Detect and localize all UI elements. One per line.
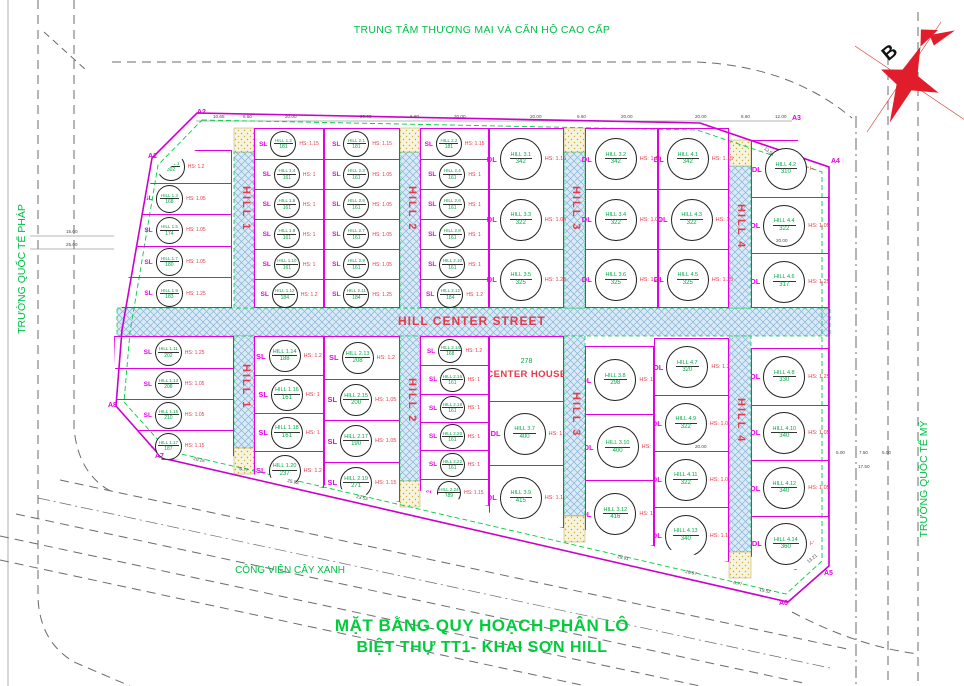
lot-hs-ratio: HS: 1.2 bbox=[304, 353, 322, 359]
lot-type-label: DL bbox=[487, 275, 497, 284]
lot-circle: HILL 2.16161 bbox=[440, 368, 464, 392]
lot-type-label: DL bbox=[487, 215, 497, 224]
dimension-label: 6.60 bbox=[741, 114, 750, 119]
lot-type-label: SL bbox=[258, 390, 268, 399]
lot-hs-ratio: HS: 1.15 bbox=[375, 480, 396, 486]
lot-circle: HILL 3.3322 bbox=[500, 199, 542, 241]
lot-name: HILL 1.18 bbox=[274, 425, 300, 432]
lot-type-label: SL bbox=[259, 141, 267, 148]
lot-name: HILL 3.10 bbox=[605, 440, 631, 447]
lot-circle: HILL 1.4161 bbox=[274, 162, 300, 188]
lot-hill-2-7: SLHILL 2.7161HS: 1.05 bbox=[325, 219, 399, 249]
lot-hs-ratio: HS: 1.05 bbox=[808, 430, 829, 436]
lot-type-label: DL bbox=[654, 155, 664, 164]
lot-hill-1-18: SLHILL 1.18161HS: 1 bbox=[255, 413, 323, 451]
lot-circle: HILL 4.7320 bbox=[666, 346, 708, 388]
lot-hs-ratio: HS: 1 bbox=[468, 172, 481, 178]
lot-circle: HILL 3.6325 bbox=[595, 259, 637, 301]
lot-area: 400 bbox=[613, 448, 623, 455]
hill-center-street-label: HILL CENTER STREET bbox=[398, 314, 546, 328]
lot-type-label: SL bbox=[263, 171, 271, 178]
lot-area: 168 bbox=[446, 351, 454, 357]
street-name-top-1: HILL 1 bbox=[240, 186, 252, 231]
lot-hill-4-7: DLHILL 4.7320HS: 1.2 bbox=[655, 339, 728, 395]
lot-type-label: DL bbox=[750, 484, 760, 493]
block-b34a: DLHILL 3.8298HS: 1.2DLHILL 3.10400HS: 1D… bbox=[585, 346, 654, 546]
lot-area: 320 bbox=[682, 367, 692, 374]
lot-name: HILL 4.6 bbox=[773, 274, 796, 281]
lot-name: HILL 3.6 bbox=[605, 272, 628, 279]
lot-area: 208 bbox=[164, 384, 172, 390]
lot-name: HILL 4.13 bbox=[673, 528, 699, 535]
lot-hs-ratio: HS: 1.05 bbox=[186, 227, 205, 233]
lot-area: 322 bbox=[779, 226, 789, 233]
lot-area: 237 bbox=[280, 471, 290, 478]
lot-hs-ratio: HS: 1.15 bbox=[464, 490, 483, 496]
dimension-label: 20.00 bbox=[530, 114, 542, 119]
boundary-marker-a3: A3 bbox=[792, 115, 801, 122]
park-label: CÔNG VIÊN CÂY XANH bbox=[200, 565, 380, 576]
lot-area: 325 bbox=[516, 280, 526, 287]
lot-type-label: DL bbox=[750, 277, 760, 286]
lot-area: 322 bbox=[681, 424, 691, 431]
lot-area: 161 bbox=[352, 175, 360, 181]
lot-hill-2-22: SLHILL 2.22161HS: 1 bbox=[421, 450, 488, 478]
lot-area: 202 bbox=[164, 353, 172, 359]
lot-hill-2-3: SLHILL 2.3161HS: 1.05 bbox=[325, 159, 399, 189]
lot-type-label: SL bbox=[427, 348, 435, 355]
block-b12a: SLHILL 1.14188HS: 1.2SLHILL 1.16161HS: 1… bbox=[254, 336, 324, 488]
lot-type-label: SL bbox=[328, 395, 338, 404]
lot-circle: HILL 1.5174 bbox=[156, 217, 184, 245]
lot-type-label: SL bbox=[428, 171, 436, 178]
lot-type-label: SL bbox=[263, 261, 271, 268]
lot-hill-1-14: SLHILL 1.14188HS: 1.2 bbox=[255, 337, 323, 375]
lot-hill-1-10: SLHILL 1.10161HS: 1 bbox=[255, 249, 323, 279]
block-t12b: SLHILL 2.1181HS: 1.15SLHILL 2.3161HS: 1.… bbox=[324, 128, 400, 308]
street-name-bottom-4: HILL 4 bbox=[735, 398, 747, 443]
lot-hs-ratio: HS: 1.2 bbox=[301, 292, 318, 298]
lot-hs-ratio: HS: 1.15 bbox=[545, 156, 566, 162]
lot-name: HILL 1.16 bbox=[274, 387, 300, 394]
lot-type-label: DL bbox=[582, 215, 592, 224]
lot-hs-ratio: HS: 1.05 bbox=[710, 421, 731, 427]
lot-hill-1-4: SLHILL 1.4161HS: 1 bbox=[255, 159, 323, 189]
lot-area: 342 bbox=[683, 159, 693, 166]
lot-area: 161 bbox=[448, 408, 456, 414]
lot-type-label: SL bbox=[144, 349, 152, 356]
lot-hill-4-8: DLHILL 4.8330HS: 1.25 bbox=[752, 349, 828, 405]
lot-hs-ratio: HS: 1.25 bbox=[186, 291, 205, 297]
lot-hs-ratio: HS: 1.25 bbox=[185, 350, 204, 356]
lot-type-label: SL bbox=[256, 466, 266, 475]
lot-area: 161 bbox=[352, 205, 360, 211]
lot-circle: HILL 1.8161 bbox=[274, 222, 300, 248]
east-area-label: TRƯỜNG QUỐC TẾ MỸ bbox=[918, 394, 930, 564]
lot-area: 188 bbox=[280, 356, 290, 363]
lot-area: 360 bbox=[781, 544, 791, 551]
street-name-bottom-1: HILL 1 bbox=[240, 364, 252, 409]
lot-name: HILL 2.13 bbox=[345, 351, 371, 358]
lot-hill-4-11: DLHILL 4.11322HS: 1.05 bbox=[655, 451, 728, 507]
lot-hill-1-12: SLHILL 1.12184HS: 1.2 bbox=[255, 279, 323, 309]
lot-hill-1-15: SLHILL 1.15210HS: 1.05 bbox=[115, 399, 233, 430]
lot-area: 161 bbox=[283, 235, 291, 241]
lot-circle: HILL 4.12340 bbox=[763, 467, 805, 509]
lot-name: HILL 3.9 bbox=[510, 490, 533, 497]
lot-area: 187 bbox=[164, 446, 172, 452]
lot-hs-ratio: HS: 1.05 bbox=[808, 223, 829, 229]
lot-area: 168 bbox=[165, 199, 173, 205]
lot-name: HILL 4.11 bbox=[673, 472, 698, 479]
lot-hs-ratio: HS: 1 bbox=[306, 430, 320, 436]
lot-name: HILL 4.14 bbox=[773, 537, 799, 544]
lot-circle: HILL 2.20161 bbox=[440, 424, 464, 448]
plan-title-line2: BIỆT THỰ TT1- KHAI SƠN HILL bbox=[0, 639, 964, 657]
lot-hs-ratio: HS: 1 bbox=[642, 444, 656, 450]
center-house-area: 278 bbox=[521, 358, 533, 366]
lot-hs-ratio: HS: 1.25 bbox=[712, 277, 733, 283]
lot-type-label: DL bbox=[582, 275, 592, 284]
dimension-label: 20.00 bbox=[285, 114, 297, 119]
lot-name: HILL 4.10 bbox=[771, 426, 797, 433]
lot-hill-2-6: SLHILL 2.6161HS: 1 bbox=[421, 189, 488, 219]
lot-circle: HILL 2.12184 bbox=[437, 282, 463, 308]
lot-area: 400 bbox=[520, 434, 530, 441]
lot-area: 161 bbox=[352, 265, 360, 271]
lot-hs-ratio: HS: 1.05 bbox=[185, 412, 204, 418]
block-t34a: DLHILL 3.2342HS: 1.15DLHILL 3.4322HS: 1.… bbox=[585, 128, 658, 308]
lot-type-label: DL bbox=[752, 165, 762, 174]
lot-hs-ratio: HS: 1 bbox=[468, 377, 481, 383]
lot-hs-ratio: HS: 1.15 bbox=[185, 443, 204, 449]
lot-hs-ratio: HS: 1 bbox=[716, 217, 730, 223]
lot-type-label: DL bbox=[487, 155, 497, 164]
lot-area: 184 bbox=[446, 295, 454, 301]
lot-hs-ratio: HS: 1.2 bbox=[188, 164, 205, 170]
block-b23a: SLHILL 2.14168HS: 1.2SLHILL 2.16161HS: 1… bbox=[420, 336, 489, 506]
lot-area: 184 bbox=[352, 295, 360, 301]
lot-hill-4-9: DLHILL 4.9322HS: 1.05 bbox=[655, 395, 728, 451]
lot-type-label: SL bbox=[261, 291, 269, 298]
lot-hs-ratio: HS: 1 bbox=[303, 262, 316, 268]
lot-hill-2-14: SLHILL 2.14168HS: 1.2 bbox=[421, 337, 488, 365]
lot-circle: HILL 4.11322 bbox=[665, 459, 707, 501]
lot-area: 271 bbox=[351, 483, 361, 490]
lot-hill-3-5: DLHILL 3.5325HS: 1.25 bbox=[490, 249, 563, 309]
lot-hs-ratio: HS: 1.05 bbox=[375, 397, 396, 403]
lot-circle: HILL 1.11202 bbox=[155, 339, 182, 366]
lot-area: 161 bbox=[448, 380, 456, 386]
lot-hs-ratio: HS: 1.05 bbox=[808, 485, 829, 491]
lot-area: 181 bbox=[445, 144, 453, 150]
lot-hs-ratio: HS: 1.15 bbox=[465, 141, 484, 147]
lot-type-label: SL bbox=[428, 201, 436, 208]
lot-area: 416 bbox=[610, 514, 620, 521]
lot-hill-1-9: SLHILL 1.9183HS: 1.25 bbox=[119, 277, 231, 309]
lot-hs-ratio: HS: 1 bbox=[303, 202, 316, 208]
lot-circle: HILL 4.8330 bbox=[763, 356, 805, 398]
lot-area: 340 bbox=[681, 536, 691, 543]
west-area-label: TRƯỜNG QUỐC TẾ PHÁP bbox=[16, 184, 28, 354]
lot-hill-2-9: SLHILL 2.9161HS: 1.05 bbox=[325, 249, 399, 279]
lot-hs-ratio: HS: 1 bbox=[306, 392, 320, 398]
lot-name: HILL 4.3 bbox=[680, 212, 703, 219]
lot-hill-1-13: SLHILL 1.13208HS: 1.05 bbox=[115, 368, 233, 399]
lot-hs-ratio: HS: 1 bbox=[468, 462, 481, 468]
lot-hs-ratio: HS: 1.05 bbox=[375, 438, 396, 444]
lot-circle: HILL 3.1342 bbox=[500, 138, 542, 180]
lot-circle: HILL 2.3161 bbox=[343, 162, 369, 188]
lot-circle: HILL 2.1181 bbox=[343, 131, 369, 157]
dimension-label: 6.60 bbox=[410, 114, 419, 119]
lot-hill-4-10: DLHILL 4.10340HS: 1.05 bbox=[752, 405, 828, 461]
lot-hs-ratio: HS: 1 bbox=[468, 405, 481, 411]
lot-circle: HILL 1.3168 bbox=[156, 185, 184, 213]
lot-area: 298 bbox=[610, 380, 620, 387]
boundary-marker-a7: A7 bbox=[155, 453, 164, 460]
lot-area: 184 bbox=[281, 295, 289, 301]
lot-circle: HILL 1.16161 bbox=[271, 379, 303, 411]
site-plan-canvas: B DLHILL 1.1302HS: 1.2SLHILL 1.3168HS: 1… bbox=[0, 0, 964, 686]
lot-circle: HILL 1.12184 bbox=[272, 282, 298, 308]
lot-type-label: SL bbox=[144, 290, 152, 297]
lot-hill-3-2: DLHILL 3.2342HS: 1.15 bbox=[586, 129, 657, 189]
dimension-label: 15.00 bbox=[66, 229, 78, 234]
lot-circle: HILL 3.10400 bbox=[597, 426, 639, 468]
lot-area: 210 bbox=[164, 415, 172, 421]
lot-area: 161 bbox=[448, 175, 456, 181]
lot-hs-ratio: HS: 1.15 bbox=[299, 141, 318, 147]
block-t34b: DLHILL 4.1342HS: 1.15DLHILL 4.3322HS: 1D… bbox=[658, 128, 729, 308]
lot-circle: HILL 2.10161 bbox=[439, 252, 465, 278]
lot-hill-2-5: SLHILL 2.5161HS: 1.05 bbox=[325, 189, 399, 219]
dimension-label: 20.00 bbox=[621, 114, 633, 119]
lot-type-label: SL bbox=[329, 353, 339, 362]
lot-circle: HILL 3.4322 bbox=[595, 199, 637, 241]
lot-hs-ratio: HS: 1 bbox=[468, 232, 481, 238]
lot-hill-4-3: DLHILL 4.3322HS: 1 bbox=[659, 189, 728, 249]
lot-type-label: DL bbox=[750, 372, 760, 381]
dimension-label: 25.00 bbox=[66, 242, 78, 247]
lot-circle: HILL 2.11184 bbox=[343, 282, 369, 308]
lot-circle: HILL 3.7400 bbox=[504, 413, 546, 455]
lot-type-label: SL bbox=[328, 437, 338, 446]
lot-area: 330 bbox=[779, 377, 789, 384]
lot-name: HILL 4.2 bbox=[775, 162, 798, 169]
lot-name: HILL 2.17 bbox=[343, 434, 369, 441]
block-t12a: SLHILL 1.2181HS: 1.15SLHILL 1.4161HS: 1S… bbox=[254, 128, 324, 308]
lot-name: HILL 3.2 bbox=[605, 152, 628, 159]
lot-hill-2-13: SLHILL 2.13208HS: 1.2 bbox=[325, 337, 399, 379]
lot-type-label: SL bbox=[428, 261, 436, 268]
lot-area: 317 bbox=[779, 282, 789, 289]
lot-area: 161 bbox=[283, 175, 291, 181]
lot-center-house: 278CENTER HOUSE bbox=[490, 337, 563, 401]
plan-title: MẶT BẰNG QUY HOẠCH PHÂN LÔ BIỆT THỰ TT1-… bbox=[0, 616, 964, 657]
lot-name: HILL 4.9 bbox=[675, 416, 698, 423]
lot-area: 161 bbox=[448, 465, 456, 471]
lot-type-label: DL bbox=[491, 429, 501, 438]
lot-type-label: SL bbox=[256, 352, 266, 361]
dimension-label: 17.50 bbox=[858, 464, 870, 469]
lot-name: HILL 3.7 bbox=[513, 426, 536, 433]
lot-hill-2-20: SLHILL 2.20161HS: 1 bbox=[421, 422, 488, 450]
lot-name: HILL 4.7 bbox=[676, 360, 699, 367]
street-name-top-3: HILL 3 bbox=[570, 186, 582, 231]
lot-hill-2-1: SLHILL 2.1181HS: 1.15 bbox=[325, 129, 399, 159]
lot-hs-ratio: HS: 1.2 bbox=[304, 468, 322, 474]
lot-hill-4-5: DLHILL 4.5325HS: 1.25 bbox=[659, 249, 728, 309]
lot-hill-2-16: SLHILL 2.16161HS: 1 bbox=[421, 365, 488, 393]
lot-hs-ratio: HS: 1.25 bbox=[545, 277, 566, 283]
boundary-marker-a8: A8 bbox=[108, 402, 117, 409]
lot-circle: HILL 4.9322 bbox=[665, 403, 707, 445]
boundary-marker-a2: A2 bbox=[197, 109, 206, 116]
dimension-label: 20.00 bbox=[360, 114, 372, 119]
lot-name: HILL 1.20 bbox=[272, 463, 298, 470]
lot-area: 183 bbox=[165, 294, 173, 300]
lot-hs-ratio: HS: 1.2 bbox=[377, 355, 395, 361]
lot-hill-2-10: SLHILL 2.10161HS: 1 bbox=[421, 249, 488, 279]
lot-circle: HILL 2.4161 bbox=[439, 162, 465, 188]
lot-type-label: DL bbox=[752, 539, 762, 548]
lot-name: HILL 4.5 bbox=[677, 272, 700, 279]
lot-circle: HILL 1.2181 bbox=[270, 131, 296, 157]
boundary-marker-a6: A6 bbox=[779, 600, 788, 607]
lot-name: HILL 4.8 bbox=[773, 370, 796, 377]
lot-hill-1-7: SLHILL 1.7180HS: 1.05 bbox=[119, 246, 231, 278]
lot-hs-ratio: HS: 1.15 bbox=[710, 533, 731, 539]
dimension-label: 7.50 bbox=[859, 450, 868, 455]
lot-area: 161 bbox=[448, 437, 456, 443]
lot-name: HILL 3.4 bbox=[605, 212, 628, 219]
lot-hs-ratio: HS: 1.05 bbox=[545, 217, 566, 223]
lot-type-label: SL bbox=[144, 227, 152, 234]
compass-north-letter: B bbox=[878, 40, 902, 65]
lot-circle: HILL 4.1342 bbox=[667, 138, 709, 180]
lot-hill-4-1: DLHILL 4.1342HS: 1.15 bbox=[659, 129, 728, 189]
lot-area: 181 bbox=[279, 144, 287, 150]
lot-circle: HILL 2.17190 bbox=[340, 425, 372, 457]
lot-hs-ratio: HS: 1.05 bbox=[710, 477, 731, 483]
lot-area: 340 bbox=[779, 488, 789, 495]
boundary-marker-a4: A4 bbox=[831, 158, 840, 165]
lot-hs-ratio: HS: 1.05 bbox=[372, 262, 391, 268]
lot-area: 161 bbox=[352, 235, 360, 241]
lot-name: HILL 2.19 bbox=[343, 476, 369, 483]
lot-area: 208 bbox=[353, 358, 363, 365]
lot-circle: HILL 1.18161 bbox=[271, 417, 303, 449]
lot-circle: HILL 1.15210 bbox=[155, 402, 182, 429]
lot-hs-ratio: HS: 1.25 bbox=[808, 374, 829, 380]
lot-hill-2-11: SLHILL 2.11184HS: 1.25 bbox=[325, 279, 399, 309]
lot-circle: HILL 3.8298 bbox=[594, 359, 636, 401]
lot-hill-1-8: SLHILL 1.8161HS: 1 bbox=[255, 219, 323, 249]
lot-type-label: SL bbox=[144, 259, 152, 266]
lot-area: 322 bbox=[516, 220, 526, 227]
lot-hill-2-12: SLHILL 2.12184HS: 1.2 bbox=[421, 279, 488, 309]
block-b12b: SLHILL 2.13208HS: 1.2SLHILL 2.15200HS: 1… bbox=[324, 336, 400, 502]
dimension-label: 20.00 bbox=[776, 238, 788, 243]
lot-hs-ratio: HS: 1 bbox=[468, 434, 481, 440]
lot-circle: HILL 3.2342 bbox=[595, 138, 637, 180]
lot-type-label: SL bbox=[263, 201, 271, 208]
plan-title-line1: MẶT BẰNG QUY HOẠCH PHÂN LÔ bbox=[0, 616, 964, 636]
lot-type-label: SL bbox=[258, 428, 268, 437]
lot-hill-4-12: DLHILL 4.12340HS: 1.05 bbox=[752, 460, 828, 516]
center-house-label: CENTER HOUSE bbox=[486, 369, 566, 380]
street-name-bottom-2: HILL 2 bbox=[406, 378, 418, 423]
lot-hs-ratio: HS: 1 bbox=[303, 172, 316, 178]
lot-hs-ratio: HS: 1.05 bbox=[185, 381, 204, 387]
lot-type-label: SL bbox=[426, 291, 434, 298]
lot-name: HILL 2.15 bbox=[343, 393, 369, 400]
street-name-top-4: HILL 4 bbox=[735, 204, 747, 249]
lot-name: HILL 3.5 bbox=[510, 272, 533, 279]
lot-name: HILL 3.1 bbox=[510, 152, 533, 159]
lot-hill-1-2: SLHILL 1.2181HS: 1.15 bbox=[255, 129, 323, 159]
lot-circle: HILL 3.12416 bbox=[594, 493, 636, 535]
lot-type-label: DL bbox=[584, 443, 594, 452]
lot-type-label: SL bbox=[429, 376, 437, 383]
lot-hs-ratio: HS: 1 bbox=[549, 431, 563, 437]
lot-circle: HILL 1.7180 bbox=[156, 248, 184, 276]
lot-hs-ratio: HS: 1.05 bbox=[186, 259, 205, 265]
boundary-marker-a1: A1 bbox=[148, 153, 157, 160]
lot-hs-ratio: HS: 1.25 bbox=[372, 292, 391, 298]
lot-hs-ratio: HS: 1.05 bbox=[186, 196, 205, 202]
lot-type-label: DL bbox=[750, 428, 760, 437]
lot-name: HILL 4.12 bbox=[771, 481, 797, 488]
lot-hill-3-4: DLHILL 3.4322HS: 1.05 bbox=[586, 189, 657, 249]
lot-circle: HILL 1.13208 bbox=[155, 371, 182, 398]
lot-area: 181 bbox=[352, 144, 360, 150]
lot-circle: HILL 2.15200 bbox=[340, 384, 372, 416]
lot-hill-3-10: DLHILL 3.10400HS: 1 bbox=[586, 414, 653, 481]
lot-area: 161 bbox=[448, 205, 456, 211]
lot-circle: HILL 1.14188 bbox=[269, 340, 301, 372]
block-t23b: DLHILL 3.1342HS: 1.15DLHILL 3.3322HS: 1.… bbox=[489, 128, 564, 308]
lot-hill-2-15: SLHILL 2.15200HS: 1.05 bbox=[325, 379, 399, 421]
lot-circle: HILL 3.5325 bbox=[500, 259, 542, 301]
lot-hill-3-6: DLHILL 3.6325HS: 1.25 bbox=[586, 249, 657, 309]
lot-area: 342 bbox=[611, 159, 621, 166]
lot-hill-1-11: SLHILL 1.11202HS: 1.25 bbox=[115, 337, 233, 368]
lot-hs-ratio: HS: 1 bbox=[468, 262, 481, 268]
lot-hill-1-16: SLHILL 1.16161HS: 1 bbox=[255, 375, 323, 413]
lot-hs-ratio: HS: 1 bbox=[303, 232, 316, 238]
lot-area: 310 bbox=[781, 169, 791, 176]
lot-area: 322 bbox=[687, 220, 697, 227]
lot-hs-ratio: HS: 1.2 bbox=[465, 348, 482, 354]
lot-area: 161 bbox=[448, 265, 456, 271]
dimension-label: 20.00 bbox=[454, 114, 466, 119]
lot-circle: HILL 4.6317 bbox=[763, 261, 805, 303]
dimension-label: 12.00 bbox=[775, 114, 787, 119]
lot-area: 322 bbox=[611, 220, 621, 227]
lot-circle: HILL 1.6161 bbox=[274, 192, 300, 218]
lot-type-label: SL bbox=[332, 201, 340, 208]
lot-hs-ratio: HS: 1.05 bbox=[372, 202, 391, 208]
lot-type-label: SL bbox=[425, 141, 433, 148]
street-name-top-2: HILL 2 bbox=[406, 186, 418, 231]
lot-circle: HILL 4.10340 bbox=[763, 412, 805, 454]
lot-name: HILL 4.1 bbox=[677, 152, 700, 159]
lot-hill-2-8: SLHILL 2.8161HS: 1 bbox=[421, 219, 488, 249]
lot-type-label: DL bbox=[750, 221, 760, 230]
lot-hill-2-18: SLHILL 2.18161HS: 1 bbox=[421, 394, 488, 422]
